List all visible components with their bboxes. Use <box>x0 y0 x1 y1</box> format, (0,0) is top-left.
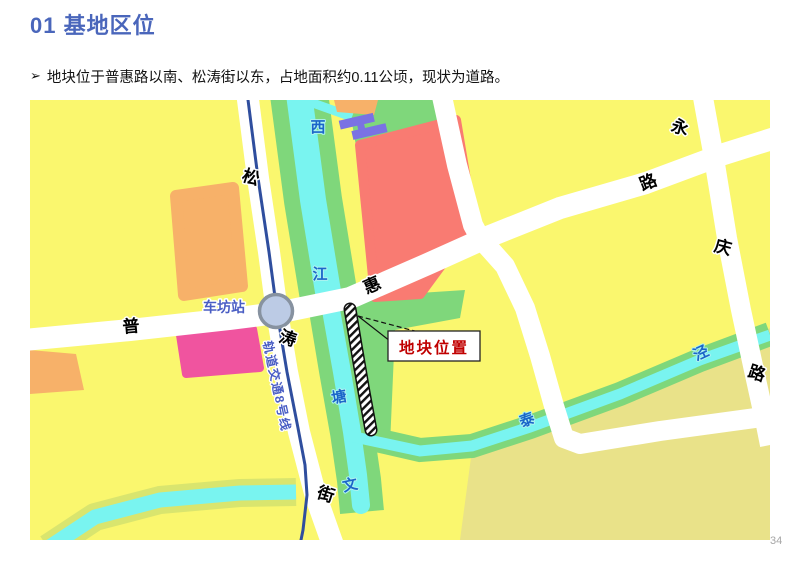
zone-orange-west-edge <box>30 350 84 394</box>
page-number: 34 <box>770 535 796 547</box>
water-label-jiang: 江 <box>312 265 327 283</box>
callout-label: 地块位置 <box>399 338 469 357</box>
water-label-xi: 西 <box>310 119 325 136</box>
water-label-tang: 塘 <box>330 387 348 407</box>
zone-pink <box>180 329 260 374</box>
page-title: 01 基地区位 <box>30 8 156 40</box>
intro-text: 地块位于普惠路以南、松涛街以东，占地面积约0.11公顷，现状为道路。 <box>47 66 509 87</box>
road-label-pu: 普 <box>122 315 141 336</box>
station-label-chefang: 车坊站 <box>203 299 245 315</box>
zone-orange-northwest <box>176 188 242 295</box>
bullet-arrow-icon: ➢ <box>30 66 41 85</box>
land-use-map-canvas: 地块位置 松 涛 街 普 惠 路 永 庆 路 西 江 塘 文 泰 泾 车坊站 轨… <box>30 100 770 540</box>
chefang-station-roundabout <box>260 295 293 328</box>
intro-bullet: ➢ 地块位于普惠路以南、松涛街以东，占地面积约0.11公顷，现状为道路。 <box>30 66 770 87</box>
site-location-map: 地块位置 松 涛 街 普 惠 路 永 庆 路 西 江 塘 文 泰 泾 车坊站 轨… <box>30 100 770 540</box>
